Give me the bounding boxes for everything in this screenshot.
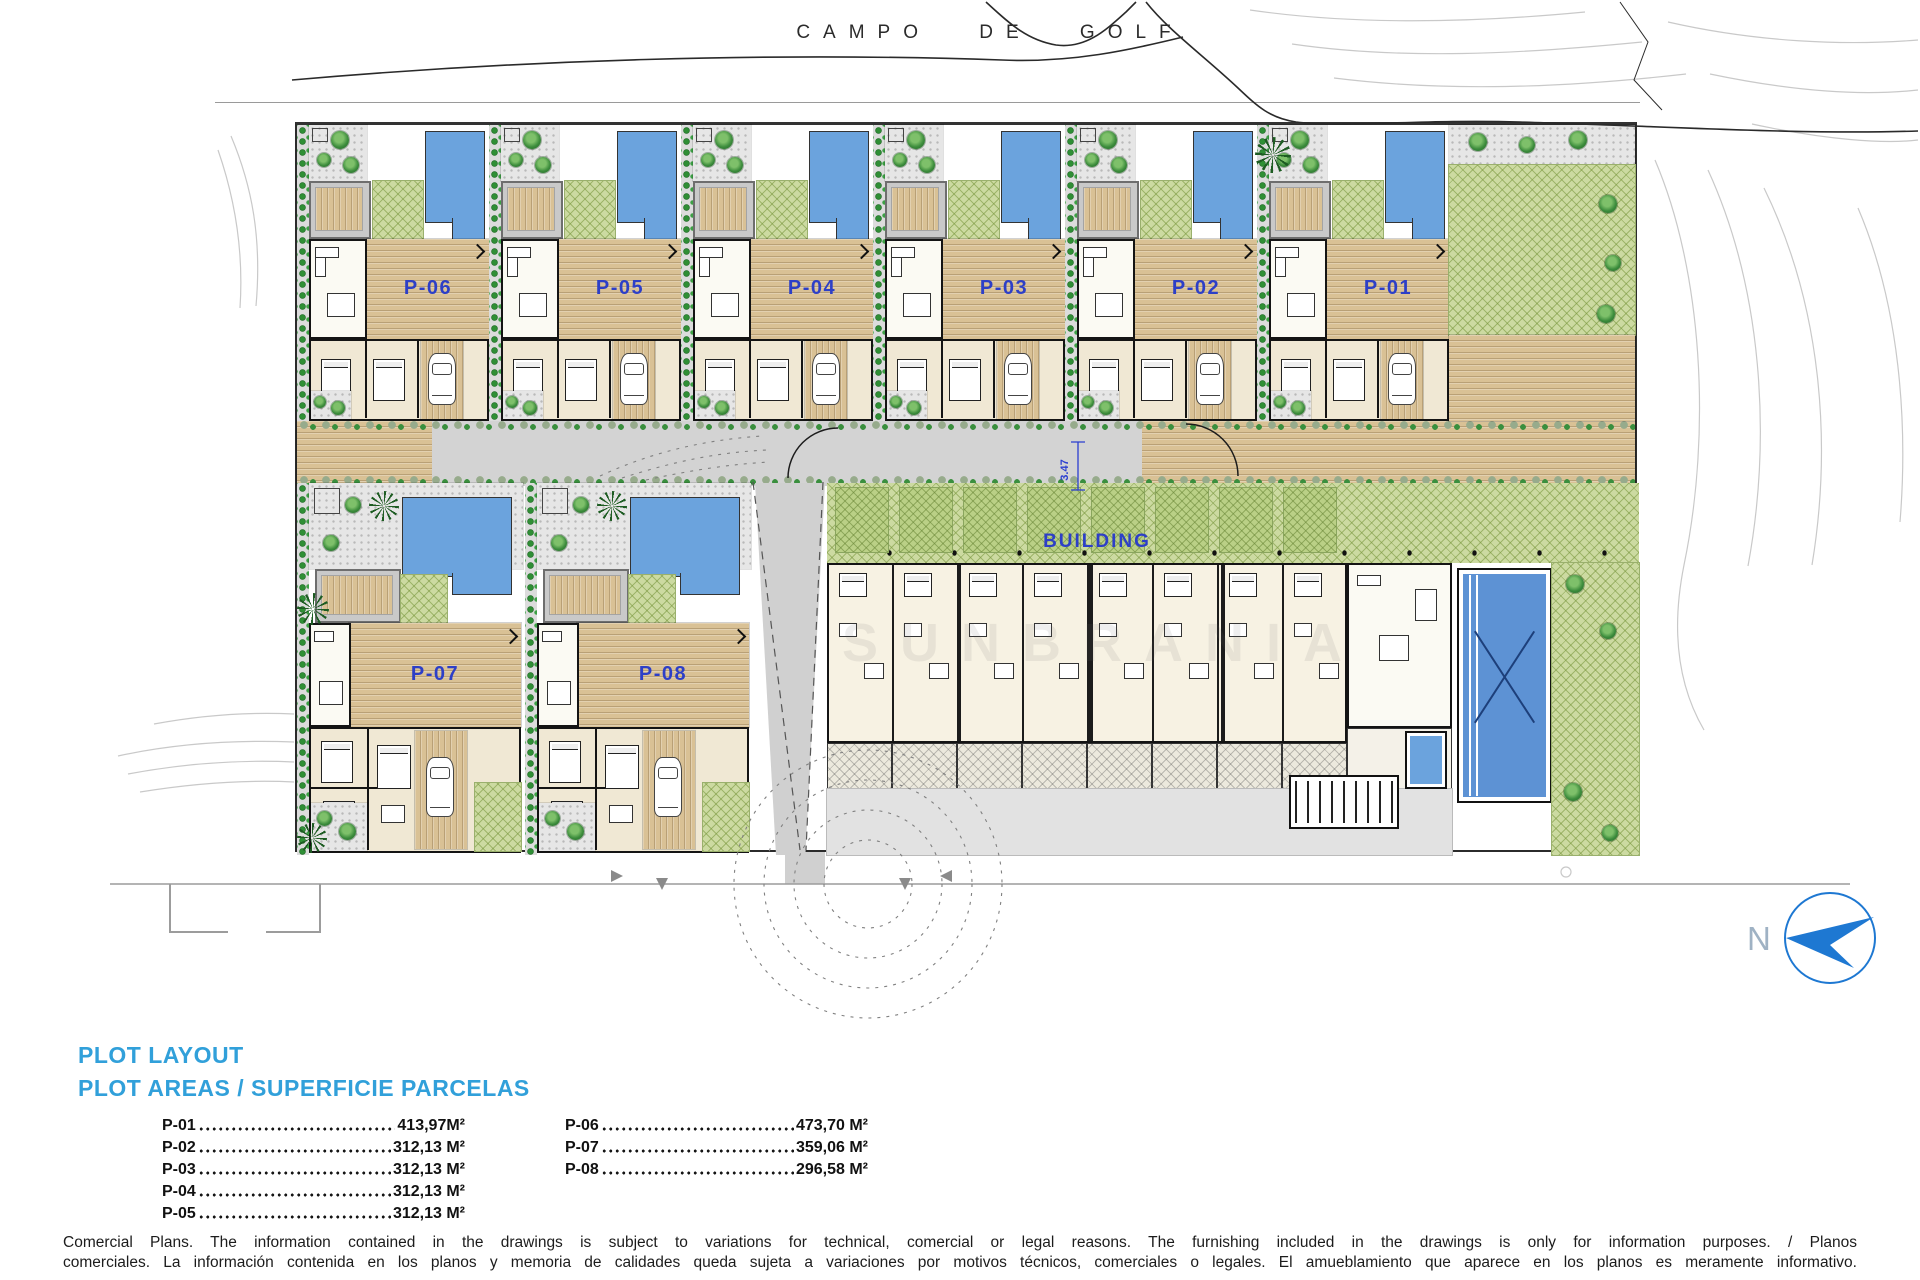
plot-area-row: P-01 413,97M² — [162, 1114, 465, 1135]
corner-garden — [1449, 125, 1635, 421]
palm-tree-icon — [297, 593, 329, 625]
bed — [1141, 359, 1173, 401]
leader-dots — [198, 1212, 391, 1220]
tree-icon — [1291, 401, 1305, 415]
disclaimer-line-en: Comercial Plans. The information contain… — [63, 1233, 1857, 1253]
interior-wall — [367, 729, 369, 850]
lawn-panel — [401, 575, 447, 623]
plot-area-row: P-05 312,13 M² — [162, 1202, 465, 1223]
dining-table — [319, 681, 343, 705]
plot-area-value: 473,70 M² — [796, 1117, 868, 1135]
pool-water — [1385, 131, 1445, 223]
living-room — [309, 623, 351, 727]
pool — [1001, 131, 1061, 243]
plot-id: P-07 — [565, 1139, 599, 1157]
interior-wall — [595, 729, 597, 850]
golf-course-label: CAMPO DE GOLF — [690, 22, 1290, 44]
car-icon — [1196, 353, 1224, 405]
villa-plot: P-07 — [297, 483, 525, 855]
driveway — [805, 341, 847, 419]
bed — [757, 359, 789, 401]
garden-shrubs — [1079, 391, 1119, 419]
corner-lawn — [1449, 165, 1635, 335]
lawn-patch — [963, 487, 1017, 553]
north-arrow-icon — [1786, 917, 1874, 968]
plot-area-value: 359,06 M² — [796, 1139, 868, 1157]
plot-area-row: P-02 312,13 M² — [162, 1136, 465, 1157]
plot-label: P-08 — [577, 663, 749, 686]
pool-water — [1001, 131, 1061, 223]
pool-lane-line — [1469, 575, 1471, 796]
garden-lawn — [475, 783, 521, 851]
tree-icon — [893, 153, 907, 167]
planter-box — [314, 488, 340, 514]
plot-area-value: 312,13 M² — [393, 1183, 465, 1201]
bed — [1229, 573, 1257, 597]
legend-columns: P-01 413,97M² P-02 312,13 M² P-03 312,13… — [162, 1114, 898, 1223]
tree-icon — [1303, 157, 1319, 173]
disclaimer-line-es: comerciales. La información contenida en… — [63, 1253, 1857, 1273]
bed — [1164, 573, 1192, 597]
garage-deck — [892, 188, 938, 230]
tree-icon — [1099, 131, 1117, 149]
planter-box — [542, 488, 568, 514]
leader-dots — [198, 1124, 396, 1132]
lawn-patch — [1283, 487, 1337, 553]
interior-wall — [1325, 341, 1327, 418]
disclaimer: Comercial Plans. The information contain… — [63, 1233, 1857, 1272]
palm-tree-icon — [1255, 137, 1291, 173]
plot-area-row: P-08 296,58 M² — [565, 1158, 868, 1179]
bed — [969, 573, 997, 597]
pool-water — [630, 497, 740, 577]
dining-table — [1379, 635, 1409, 661]
tree-icon — [339, 823, 356, 840]
living-room — [537, 623, 579, 727]
building-label: BUILDING — [1022, 531, 1172, 553]
plot-area-row: P-03 312,13 M² — [162, 1158, 465, 1179]
plan-sheet: CAMPO DE GOLF P-06 — [0, 0, 1920, 1280]
living-room — [1077, 239, 1135, 339]
tree-icon — [907, 401, 921, 415]
tree-icon — [1519, 137, 1535, 153]
tree-icon — [1082, 396, 1094, 408]
dining-table — [903, 293, 931, 317]
pool — [1193, 131, 1253, 243]
interior-wall — [1377, 341, 1379, 418]
dining-table — [1287, 293, 1315, 317]
garage-roof — [1077, 181, 1139, 239]
plot-label: P-04 — [751, 277, 873, 300]
palm-tree-icon — [297, 823, 327, 853]
sidewalk-lines — [110, 884, 1850, 932]
tree-icon — [1085, 153, 1099, 167]
communal-pool — [1457, 568, 1552, 803]
tree-icon — [1566, 575, 1584, 593]
tree-icon — [1111, 157, 1127, 173]
tree-icon — [573, 497, 589, 513]
garage-deck — [322, 576, 392, 614]
leader-dots — [601, 1168, 794, 1176]
villa-plot: P-01 — [1257, 125, 1449, 421]
sofa — [891, 257, 902, 277]
terrace-strip — [827, 743, 1347, 789]
plot-area-value: 296,58 M² — [796, 1161, 868, 1179]
driveway — [1381, 341, 1423, 419]
legend-title: PLOT LAYOUT — [78, 1042, 898, 1069]
bed — [605, 745, 639, 789]
tree-icon — [907, 131, 925, 149]
bed — [377, 745, 411, 789]
tree-icon — [567, 823, 584, 840]
leader-dots — [601, 1146, 794, 1154]
leader-dots — [198, 1146, 391, 1154]
hedge-strip — [873, 125, 885, 421]
garage-roof — [885, 181, 947, 239]
living-room — [1269, 239, 1327, 339]
bed — [1034, 573, 1062, 597]
garage-roof — [1269, 181, 1331, 239]
pool — [809, 131, 869, 243]
driveway — [1189, 341, 1231, 419]
plot-areas-legend: PLOT LAYOUT PLOT AREAS / SUPERFICIE PARC… — [78, 1042, 898, 1223]
car-icon — [1388, 353, 1416, 405]
hedge-strip — [1065, 125, 1077, 421]
plot-label: P-07 — [349, 663, 521, 686]
plot-id: P-06 — [565, 1117, 599, 1135]
interior-wall — [993, 341, 995, 418]
bed — [321, 741, 353, 783]
sofa — [1275, 257, 1286, 277]
plot-id: P-08 — [565, 1161, 599, 1179]
lawn-panel — [949, 181, 999, 239]
north-label: N — [1747, 920, 1771, 957]
lawn-patch — [899, 487, 953, 553]
plot-area-value: 312,13 M² — [393, 1139, 465, 1157]
entry-apron — [785, 852, 825, 884]
leader-dots — [198, 1168, 391, 1176]
garden-paving — [1077, 125, 1135, 181]
palm-tree-icon — [597, 491, 627, 521]
bed — [1294, 573, 1322, 597]
plot-id: P-01 — [162, 1117, 196, 1135]
plot-area-value: 413,97M² — [397, 1117, 465, 1135]
bottom-villa-row: P-07 P-08 — [297, 125, 753, 855]
north-circle — [1785, 893, 1875, 983]
pool — [1385, 131, 1445, 243]
sofa — [542, 631, 562, 642]
tree-icon — [919, 157, 935, 173]
plot-id: P-05 — [162, 1205, 196, 1223]
legend-column-1: P-01 413,97M² P-02 312,13 M² P-03 312,13… — [162, 1114, 465, 1223]
tree-icon — [1600, 623, 1616, 639]
leader-dots — [198, 1190, 391, 1198]
car-icon — [812, 353, 840, 405]
driveway — [415, 731, 467, 849]
garden-paving — [1449, 125, 1635, 165]
north-indicator: N — [1747, 893, 1875, 983]
tree-icon — [345, 497, 361, 513]
garden-shrubs — [539, 803, 595, 851]
tree-icon — [317, 811, 332, 826]
stairs — [1289, 775, 1399, 829]
pool-water — [402, 497, 512, 577]
corner-deck — [1449, 335, 1635, 421]
plot-label: P-01 — [1327, 277, 1449, 300]
tree-icon — [1291, 131, 1309, 149]
bathroom-fixture — [381, 805, 405, 823]
interior-wall — [1133, 341, 1135, 418]
plot-area-value: 312,13 M² — [393, 1205, 465, 1223]
bed — [949, 359, 981, 401]
garage-roof — [543, 569, 629, 623]
entry-ramp — [755, 483, 825, 855]
lawn-panel — [629, 575, 675, 623]
sofa — [314, 631, 334, 642]
tree-icon — [1469, 133, 1487, 151]
lawn-panel — [1141, 181, 1191, 239]
legend-subtitle: PLOT AREAS / SUPERFICIE PARCELAS — [78, 1075, 898, 1102]
car-icon — [1004, 353, 1032, 405]
garage-roof — [315, 569, 401, 623]
dining-table — [1095, 293, 1123, 317]
interior-wall — [941, 341, 943, 418]
side-lawn — [1552, 563, 1639, 855]
lawn-panel — [1333, 181, 1383, 239]
legend-column-2: P-06 473,70 M² P-07 359,06 M² P-08 296,5… — [565, 1114, 868, 1223]
plot-area-row: P-06 473,70 M² — [565, 1114, 868, 1135]
bed — [549, 741, 581, 783]
tree-icon — [1605, 255, 1621, 271]
leader-dots — [601, 1124, 794, 1132]
garden-lawn — [703, 783, 749, 851]
plot-id: P-02 — [162, 1139, 196, 1157]
hedge-strip — [525, 483, 537, 855]
plot-area-row: P-04 312,13 M² — [162, 1180, 465, 1201]
garage-deck — [1084, 188, 1130, 230]
plot-label: P-02 — [1135, 277, 1257, 300]
driveway — [643, 731, 695, 849]
lawn-patch — [1219, 487, 1273, 553]
tree-icon — [1564, 783, 1582, 801]
pool-water — [1193, 131, 1253, 223]
garden-shrubs — [1271, 391, 1311, 419]
villa-plot: P-03 — [873, 125, 1065, 421]
lawn-patch — [835, 487, 889, 553]
bathroom-fixture — [609, 805, 633, 823]
villa-plot: P-08 — [525, 483, 753, 855]
villa-plot: P-02 — [1065, 125, 1257, 421]
tree-icon — [1602, 825, 1618, 841]
bathroom-fixture — [1415, 589, 1437, 621]
lawn-patches — [827, 483, 1639, 563]
car-icon — [426, 757, 454, 817]
driveway — [997, 341, 1039, 419]
living-room — [885, 239, 943, 339]
garden-paving — [885, 125, 943, 181]
plot-area-value: 312,13 M² — [393, 1161, 465, 1179]
planter-box — [888, 128, 904, 142]
sofa — [1357, 575, 1381, 586]
tree-icon — [545, 811, 560, 826]
plot-id: P-03 — [162, 1161, 196, 1179]
bed — [1099, 573, 1127, 597]
tree-icon — [1274, 396, 1286, 408]
lawn-panel — [757, 181, 807, 239]
street-edge-line — [215, 102, 1640, 103]
plot-area-row: P-07 359,06 M² — [565, 1136, 868, 1157]
tree-icon — [323, 535, 339, 551]
palm-tree-icon — [369, 491, 399, 521]
plot-id: P-04 — [162, 1183, 196, 1201]
tree-icon — [1569, 131, 1587, 149]
sidewalk-markers — [611, 870, 952, 890]
pool-step — [680, 573, 741, 595]
interior-wall — [1185, 341, 1187, 418]
tree-icon — [551, 535, 567, 551]
sofa — [1083, 257, 1094, 277]
car-icon — [654, 757, 682, 817]
pool-water — [809, 131, 869, 223]
bed — [1333, 359, 1365, 401]
watermark: SUNBRANIA — [842, 612, 1364, 674]
hedge-strip — [297, 483, 309, 855]
garage-deck — [550, 576, 620, 614]
bed — [904, 573, 932, 597]
tree-icon — [890, 396, 902, 408]
bed — [839, 573, 867, 597]
tree-icon — [1599, 195, 1617, 213]
site-plan: P-06 P-05 — [295, 122, 1637, 852]
tree-icon — [1597, 305, 1615, 323]
plot-label: P-03 — [943, 277, 1065, 300]
garden-shrubs — [887, 391, 927, 419]
small-pool — [1405, 731, 1447, 789]
planter-box — [1080, 128, 1096, 142]
interior-wall — [801, 341, 803, 418]
garage-deck — [1276, 188, 1322, 230]
tree-icon — [1099, 401, 1113, 415]
pool-step — [452, 573, 513, 595]
dining-table — [547, 681, 571, 705]
